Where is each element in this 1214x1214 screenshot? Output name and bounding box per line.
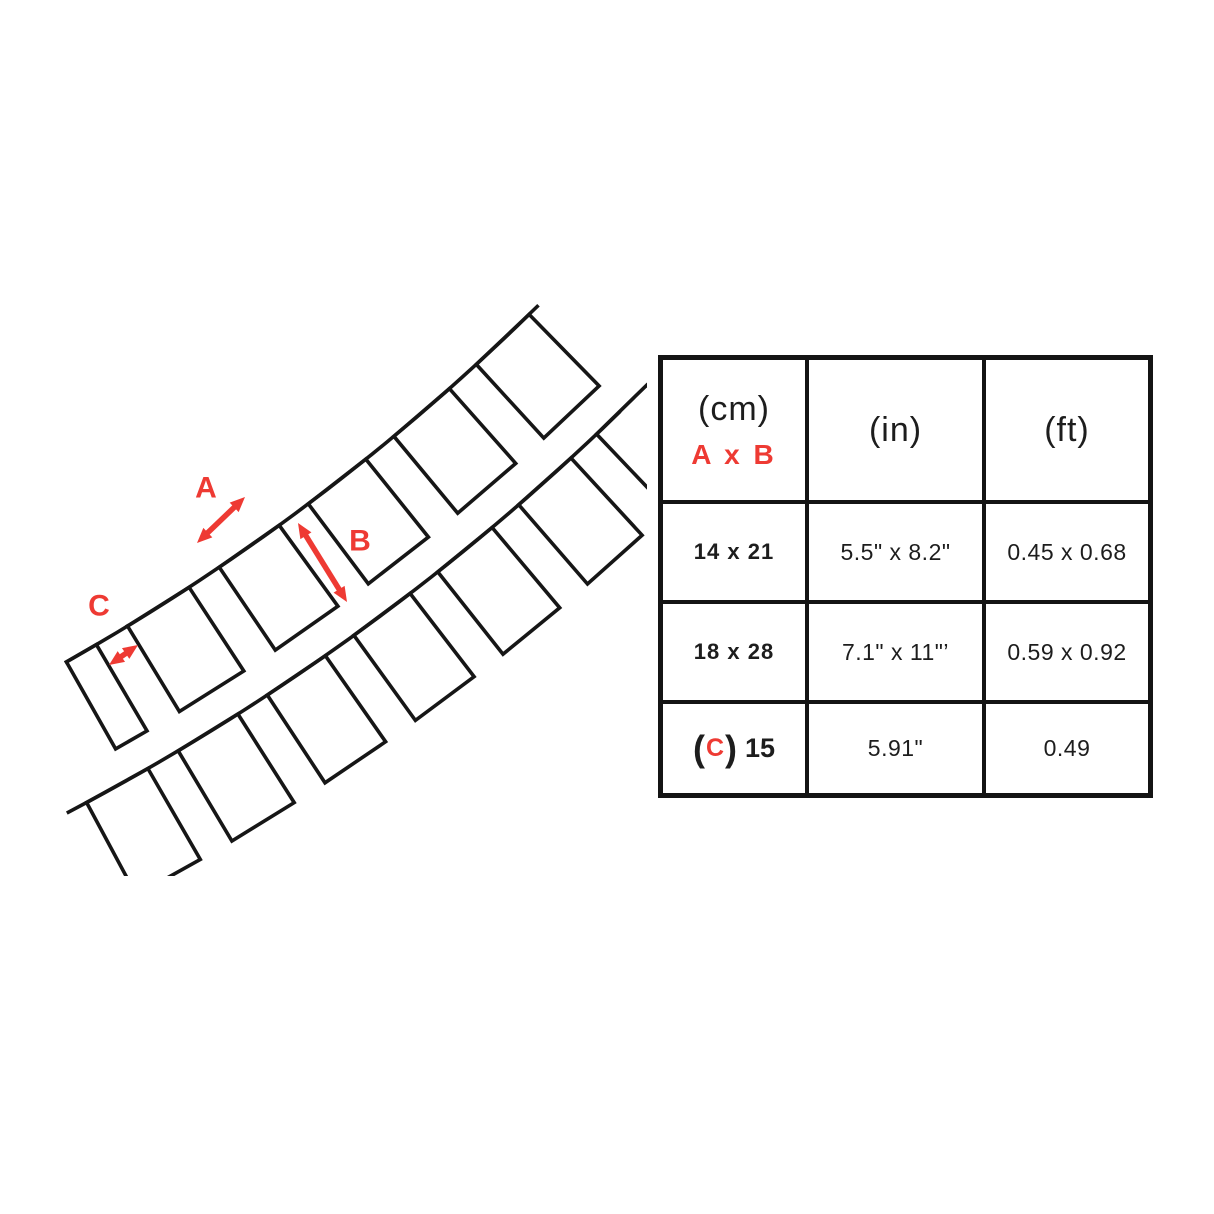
label-c: C xyxy=(88,590,110,623)
stall-outline xyxy=(394,389,516,514)
row2-ft: 0.59 x 0.92 xyxy=(986,604,1148,700)
header-cell-in: (in) xyxy=(809,360,982,500)
stall-outline xyxy=(128,587,244,711)
stall-outline xyxy=(219,525,338,650)
arrow-c xyxy=(109,645,138,665)
stall-outline xyxy=(267,656,385,783)
row1-cm: 14 x 21 xyxy=(663,504,805,600)
row3-ft: 0.49 xyxy=(986,704,1148,793)
row3-value: 15 xyxy=(745,733,775,764)
stall-outline xyxy=(66,645,147,749)
row3-cm: ( C ) 15 xyxy=(663,704,805,793)
size-table: (cm) A x B (in) (ft) 14 x 21 5.5" x 8.2"… xyxy=(658,355,1153,798)
header-cell-cm: (cm) A x B xyxy=(663,360,805,500)
infographic-canvas: A B C (cm) A x B (in) (ft) 14 x 21 5.5" … xyxy=(0,0,1214,1214)
row2-cm: 18 x 28 xyxy=(663,604,805,700)
row3-cm-composite: ( C ) 15 xyxy=(693,731,775,767)
stall-outline xyxy=(354,593,474,720)
curved-track-lines xyxy=(66,307,721,896)
row3-paren-close: ) xyxy=(725,731,737,767)
header-cm-unit: (cm) xyxy=(698,390,770,429)
dimension-annotations: A B C xyxy=(88,472,371,666)
stall-outline xyxy=(87,769,201,896)
row1-in: 5.5" x 8.2" xyxy=(809,504,982,600)
row3-c-label: C xyxy=(706,734,724,763)
row3-in: 5.91" xyxy=(809,704,982,793)
header-cell-ft: (ft) xyxy=(986,360,1148,500)
stall-outline xyxy=(476,314,599,438)
row2-in: 7.1" x 11"’ xyxy=(809,604,982,700)
label-b: B xyxy=(349,525,371,558)
row3-paren-open: ( xyxy=(693,731,705,767)
arrow-a-shaft xyxy=(205,505,237,536)
row1-ft: 0.45 x 0.68 xyxy=(986,504,1148,600)
stall-outline xyxy=(438,528,560,655)
label-a: A xyxy=(195,472,217,505)
header-axb: A x B xyxy=(691,439,777,471)
stall-outline xyxy=(178,714,294,841)
stall-outline xyxy=(519,458,642,584)
